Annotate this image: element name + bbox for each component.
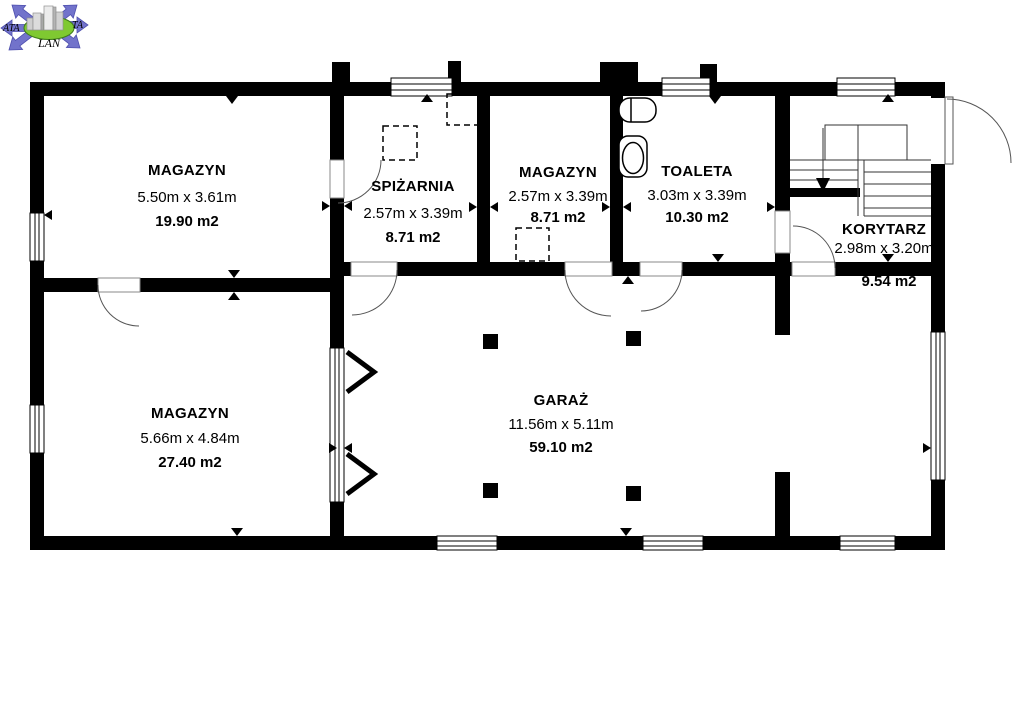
door-leaf <box>98 278 140 292</box>
pillar <box>483 334 498 349</box>
dimension-tick-icon <box>622 276 634 284</box>
room-area: 10.30 m2 <box>647 208 746 227</box>
door-arc <box>947 99 1011 163</box>
sink-icon <box>619 98 656 122</box>
dimension-tick-icon <box>490 202 498 212</box>
room-dimensions: 3.03m x 3.39m <box>647 186 746 205</box>
room-area: 8.71 m2 <box>363 228 462 247</box>
room-dimensions: 2.57m x 3.39m <box>363 204 462 223</box>
logo-buildings-icon <box>27 6 63 30</box>
logo-text-bottom: LAN <box>37 36 61 50</box>
dimension-tick-icon <box>469 202 477 212</box>
room-label-magazyn-1: MAGAZYN 5.50m x 3.61m 19.90 m2 <box>137 161 236 231</box>
dimension-tick-icon <box>231 528 243 536</box>
room-area: 19.90 m2 <box>137 212 236 231</box>
door-leaf <box>792 262 835 276</box>
door-leaf <box>640 262 682 276</box>
floor-plan-drawing: ATA TA LAN <box>0 0 1024 724</box>
logo-text-right: TA <box>72 20 84 31</box>
window <box>30 405 44 453</box>
room-area: 8.71 m2 <box>508 208 607 227</box>
dimension-tick-icon <box>228 292 240 300</box>
room-name: TOALETA <box>647 162 746 181</box>
window <box>837 78 895 96</box>
door <box>98 278 140 326</box>
room-name: KORYTARZ <box>834 220 933 239</box>
equipment-dashed-outline <box>516 228 549 261</box>
room-label-garaz: GARAŻ 11.56m x 5.11m 59.10 m2 <box>508 391 613 457</box>
room-area: 59.10 m2 <box>508 438 613 457</box>
window <box>391 78 452 96</box>
room-name: MAGAZYN <box>137 161 236 180</box>
room-dimensions: 11.56m x 5.11m <box>508 415 613 434</box>
window <box>840 536 895 550</box>
room-name: MAGAZYN <box>140 404 239 423</box>
pillar <box>626 486 641 501</box>
window <box>30 213 44 261</box>
door-leaf <box>351 262 397 276</box>
dimension-tick-icon <box>44 210 52 220</box>
pillar <box>626 331 641 346</box>
entrance-door <box>931 97 1011 164</box>
dimension-tick-icon <box>709 96 721 104</box>
dimension-tick-icon <box>322 201 330 211</box>
room-dimensions: 2.57m x 3.39m <box>508 187 607 206</box>
equipment-dashed-outline <box>447 94 478 125</box>
door <box>640 262 682 311</box>
door-leaf <box>945 97 953 164</box>
room-name: MAGAZYN <box>508 163 607 182</box>
dimension-tick-icon <box>712 254 724 262</box>
garage-door-chevron-icon <box>347 352 374 494</box>
dimension-tick-icon <box>228 270 240 278</box>
door-arc <box>565 270 611 316</box>
door-opening <box>775 211 790 253</box>
room-name: GARAŻ <box>508 391 613 410</box>
staircase <box>790 125 931 216</box>
pillar <box>483 483 498 498</box>
door <box>351 262 397 315</box>
door <box>565 262 612 316</box>
watermark-logo: ATA TA LAN <box>1 0 88 56</box>
dimension-tick-icon <box>226 96 238 104</box>
room-label-magazyn-3: MAGAZYN 5.66m x 4.84m 27.40 m2 <box>140 404 239 472</box>
window <box>643 536 703 550</box>
window <box>437 536 497 550</box>
dimension-tick-icon <box>344 443 352 453</box>
room-label-magazyn-2: MAGAZYN 2.57m x 3.39m 8.71 m2 <box>508 163 607 227</box>
toilet-icon <box>619 136 647 177</box>
room-dimensions: 5.50m x 3.61m <box>137 188 236 207</box>
garage-door-opening <box>330 348 344 502</box>
room-dimensions: 2.98m x 3.20m <box>834 239 933 258</box>
room-label-spizarnia: SPIŻARNIA 2.57m x 3.39m 8.71 m2 <box>363 177 462 247</box>
walls <box>30 61 945 550</box>
door-arc <box>352 270 397 315</box>
logo-text-left: ATA <box>2 23 21 34</box>
window <box>662 78 710 96</box>
floor-plan: ATA TA LAN MAGAZYN 5.50m x 3.61m 19.90 m… <box>0 0 1024 724</box>
dimension-tick-icon <box>620 528 632 536</box>
equipment-dashed-outline <box>383 126 417 160</box>
dimension-tick-icon <box>623 202 631 212</box>
room-area: 27.40 m2 <box>140 453 239 472</box>
room-label-korytarz: KORYTARZ 2.98m x 3.20m <box>834 220 933 258</box>
wall-stub <box>332 62 350 84</box>
room-dimensions: 5.66m x 4.84m <box>140 429 239 448</box>
door <box>792 226 835 276</box>
room-name: SPIŻARNIA <box>363 177 462 196</box>
door-leaf <box>330 160 344 198</box>
room-area-korytarz: 9.54 m2 <box>861 273 916 290</box>
room-label-toaleta: TOALETA 3.03m x 3.39m 10.30 m2 <box>647 162 746 227</box>
dimension-tick-icon <box>767 202 775 212</box>
dimension-tick-icon <box>923 443 931 453</box>
window <box>931 332 945 480</box>
door-leaf <box>565 262 612 276</box>
